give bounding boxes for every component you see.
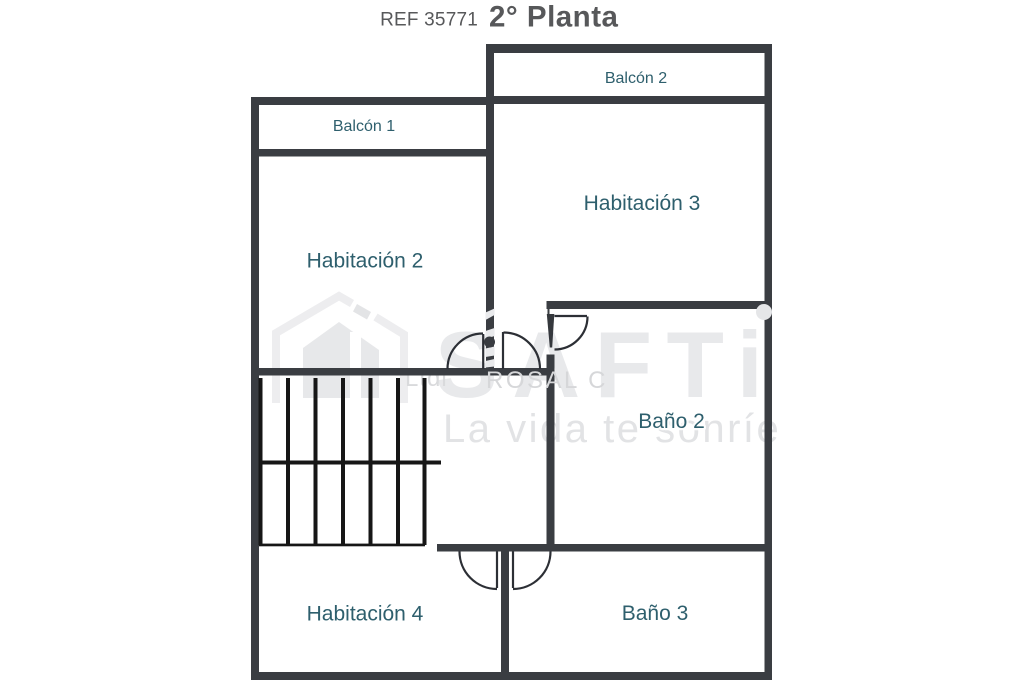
svg-text:ROSAL C: ROSAL C xyxy=(486,367,608,394)
svg-text:Balcón 1: Balcón 1 xyxy=(333,118,395,135)
svg-text:Baño 3: Baño 3 xyxy=(622,602,689,625)
svg-text:Baño 2: Baño 2 xyxy=(638,410,705,433)
svg-text:Habitación 2: Habitación 2 xyxy=(307,250,424,273)
svg-text:REF 35771: REF 35771 xyxy=(380,10,478,31)
svg-text:Balcón 2: Balcón 2 xyxy=(605,70,667,87)
svg-text:Habitación 4: Habitación 4 xyxy=(307,603,424,626)
svg-text:Habitación 3: Habitación 3 xyxy=(584,192,701,215)
svg-text:2° Planta: 2° Planta xyxy=(489,1,619,34)
